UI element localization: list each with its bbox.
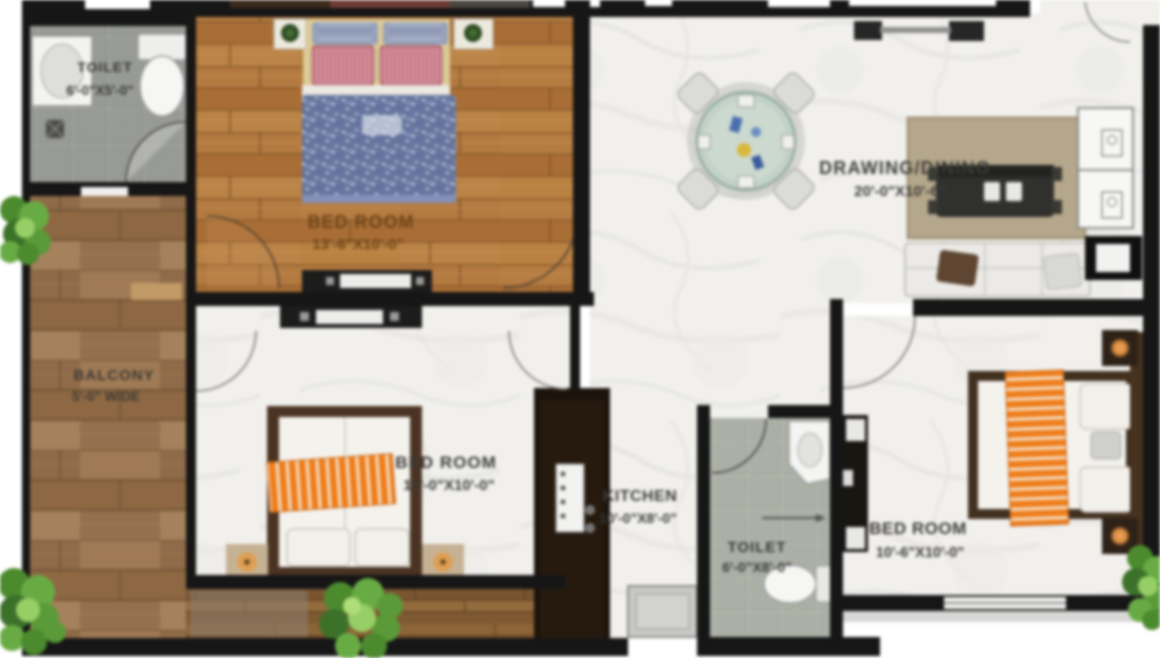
svg-text:BED ROOM: BED ROOM [308, 212, 415, 232]
svg-text:TOILET: TOILET [727, 539, 786, 556]
svg-text:BED ROOM: BED ROOM [395, 453, 497, 472]
svg-text:20'-0"X10'-6": 20'-0"X10'-6" [854, 183, 945, 200]
svg-text:12'-0"X10'-0": 12'-0"X10'-0" [403, 477, 494, 494]
svg-text:TOILET: TOILET [77, 59, 133, 75]
svg-text:KITCHEN: KITCHEN [603, 488, 678, 505]
svg-text:10'-0"X8'-0": 10'-0"X8'-0" [599, 510, 677, 526]
svg-text:13'-6"X10'-0": 13'-6"X10'-0" [312, 236, 403, 253]
svg-text:BALCONY: BALCONY [73, 367, 154, 384]
svg-text:BED ROOM: BED ROOM [869, 519, 967, 538]
svg-text:5'-0" WIDE: 5'-0" WIDE [72, 389, 140, 404]
svg-text:6'-0"X8'-0": 6'-0"X8'-0" [722, 559, 792, 575]
svg-text:6'-0"X5'-0": 6'-0"X5'-0" [66, 83, 133, 98]
svg-text:10'-6"X10'-0": 10'-6"X10'-0" [876, 545, 964, 561]
svg-text:DRAWING/DINING: DRAWING/DINING [819, 158, 991, 178]
